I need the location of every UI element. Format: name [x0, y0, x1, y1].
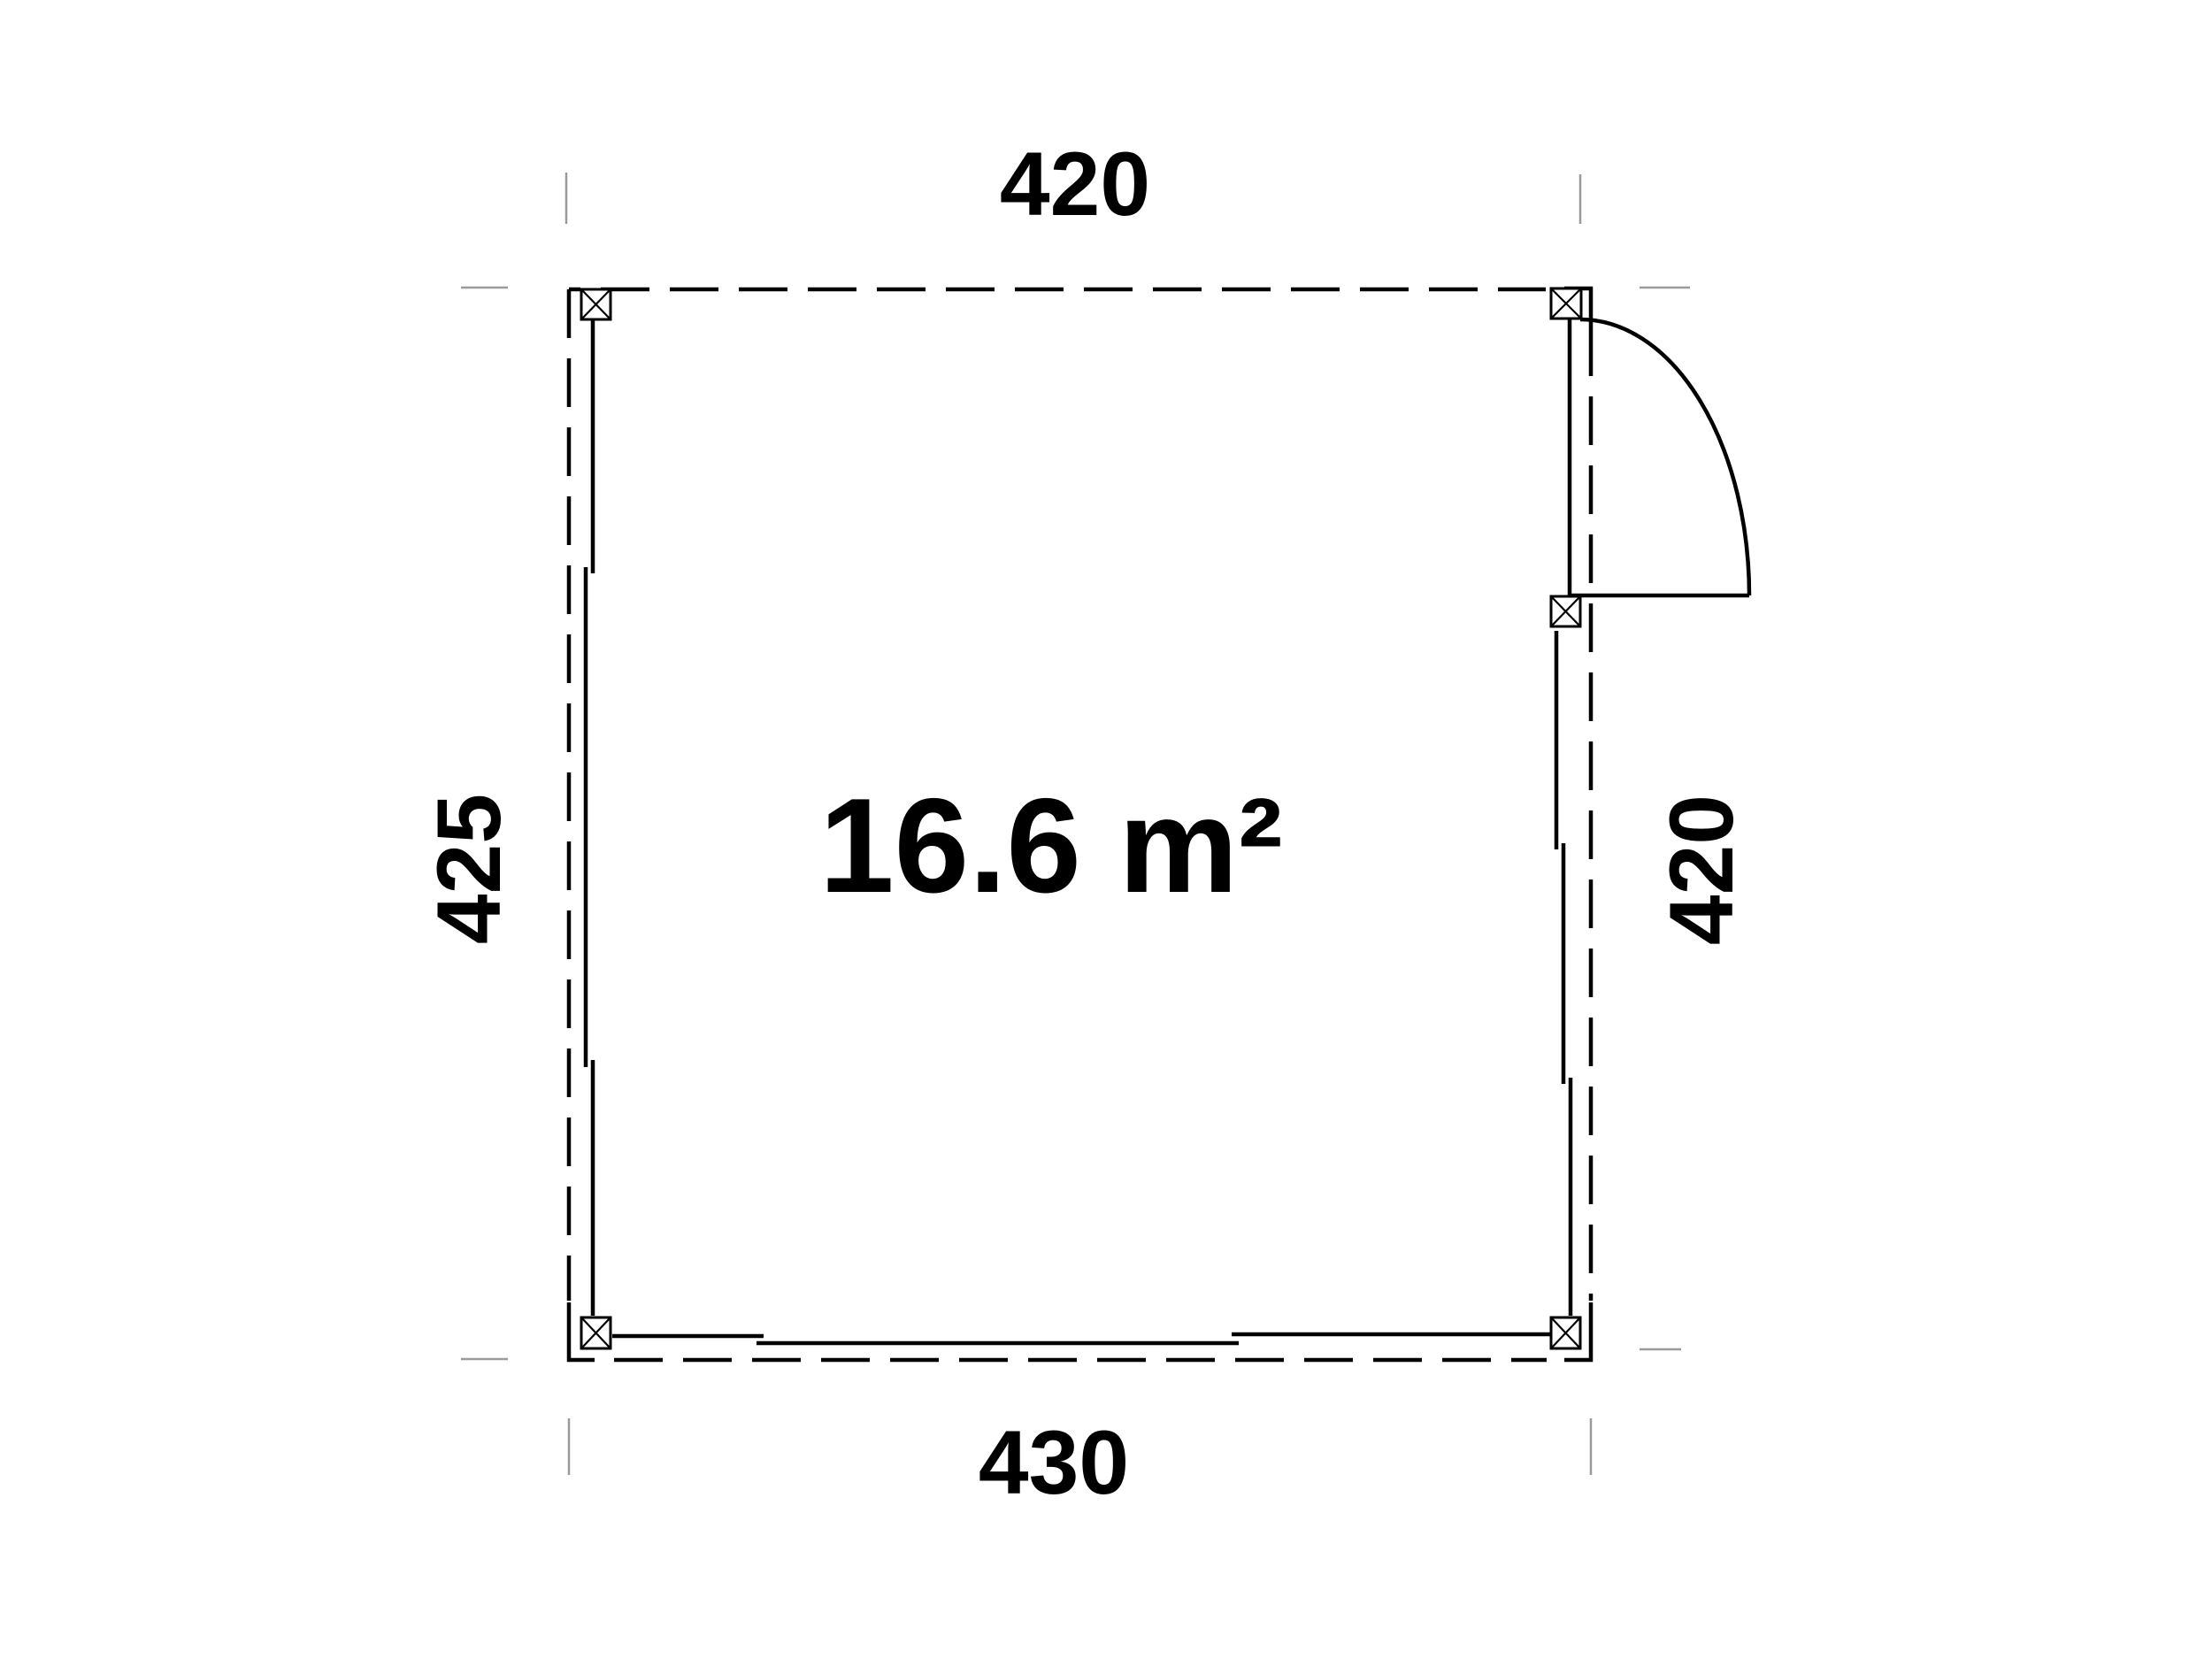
dimension-label-right: 420	[1651, 795, 1752, 945]
area-label: 16.6 m²	[819, 771, 1283, 921]
post-top-right	[1551, 288, 1581, 319]
dimension-label-bottom: 430	[979, 1412, 1129, 1513]
dimension-label-left: 425	[419, 794, 519, 944]
dimension-label-top: 420	[1000, 134, 1150, 234]
floor-plan-drawing: 420 430 425 420 16.6 m²	[0, 0, 2212, 1659]
post-bottom-left	[581, 1317, 611, 1348]
floor-plan-canvas: 420 430 425 420 16.6 m²	[0, 0, 2212, 1659]
post-top-left	[581, 289, 611, 319]
post-bottom-right	[1551, 1317, 1580, 1348]
post-door-bottom	[1551, 596, 1580, 626]
